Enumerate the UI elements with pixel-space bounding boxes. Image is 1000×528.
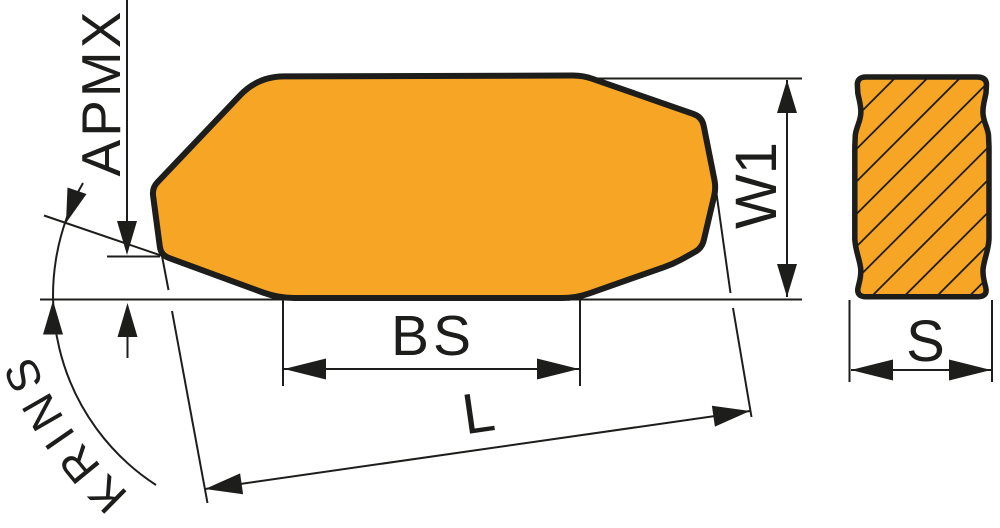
- svg-text:S: S: [906, 309, 945, 374]
- svg-text:BS: BS: [391, 304, 475, 368]
- svg-text:W1: W1: [724, 142, 789, 229]
- svg-text:APMX: APMX: [70, 9, 132, 177]
